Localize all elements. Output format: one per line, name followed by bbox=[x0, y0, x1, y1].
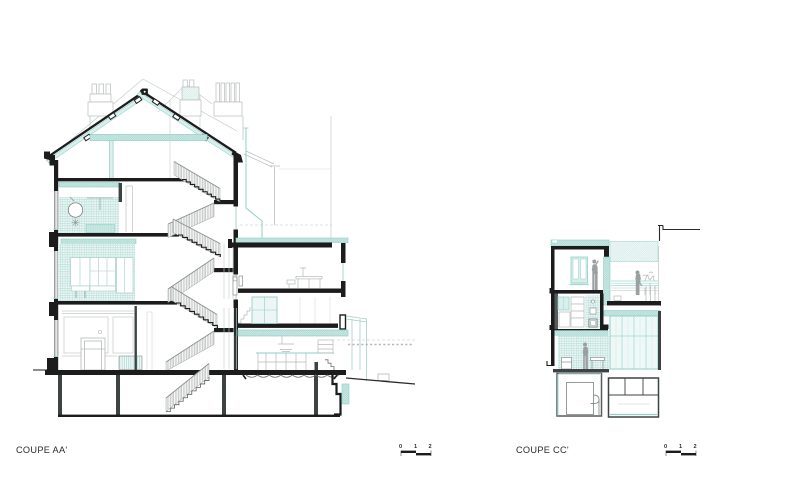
svg-text:COUPE AA': COUPE AA' bbox=[16, 445, 67, 455]
svg-text:2: 2 bbox=[429, 444, 432, 450]
svg-text:COUPE CC': COUPE CC' bbox=[516, 445, 569, 455]
svg-text:1: 1 bbox=[414, 444, 417, 450]
svg-text:1: 1 bbox=[679, 444, 682, 450]
svg-text:0: 0 bbox=[399, 444, 402, 450]
svg-text:2: 2 bbox=[694, 444, 697, 450]
svg-text:0: 0 bbox=[664, 444, 667, 450]
